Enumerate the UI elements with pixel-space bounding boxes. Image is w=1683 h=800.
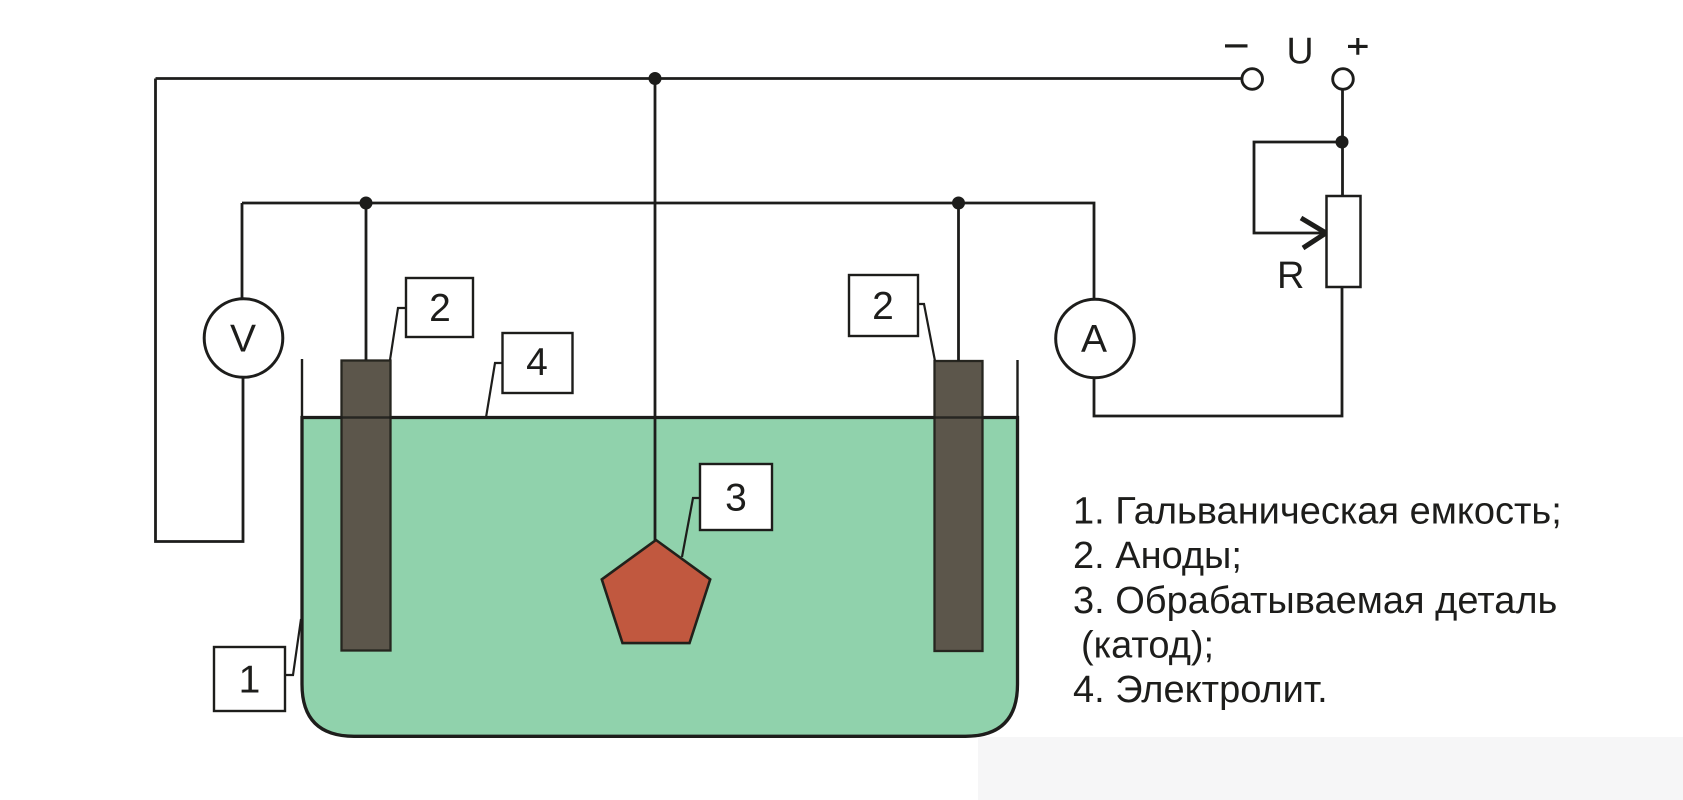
svg-text:1: 1 (239, 659, 261, 702)
svg-text:3. Обрабатываемая деталь: 3. Обрабатываемая деталь (1073, 580, 1557, 622)
svg-text:U: U (1286, 30, 1313, 72)
svg-text:2. Аноды;: 2. Аноды; (1073, 535, 1242, 577)
svg-text:1. Гальваническая емкость;: 1. Гальваническая емкость; (1073, 491, 1562, 533)
svg-text:2: 2 (429, 287, 451, 330)
svg-text:(катод);: (катод); (1081, 625, 1214, 667)
svg-text:A: A (1081, 318, 1107, 361)
svg-text:4: 4 (526, 341, 548, 384)
svg-text:3: 3 (725, 477, 747, 520)
svg-text:2: 2 (872, 285, 894, 328)
svg-text:V: V (230, 318, 256, 361)
svg-text:R: R (1277, 255, 1304, 297)
svg-text:4. Электролит.: 4. Электролит. (1073, 669, 1328, 711)
